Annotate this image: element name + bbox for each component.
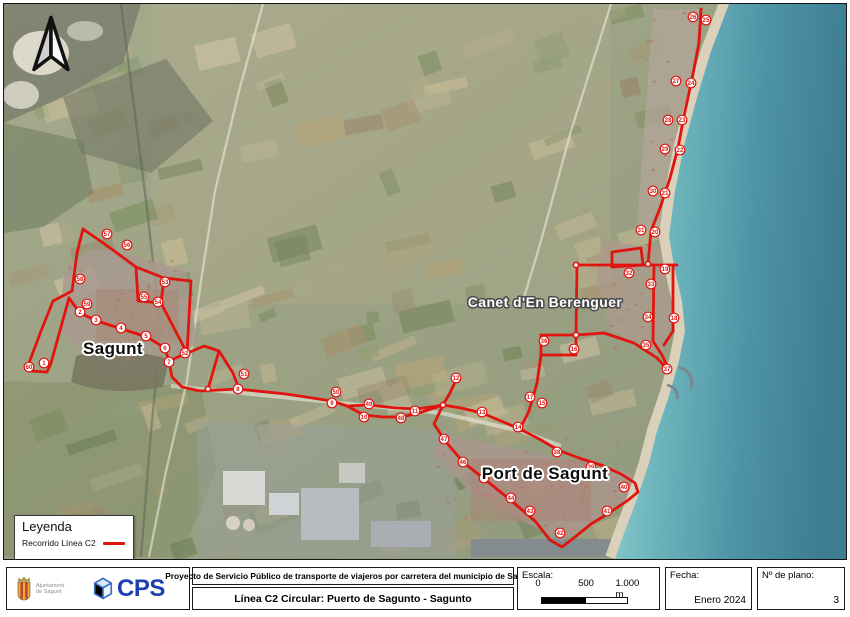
- svg-text:59: 59: [84, 301, 91, 308]
- bus-stop-marker: 31: [636, 225, 646, 235]
- svg-text:49: 49: [366, 401, 373, 408]
- bus-stop-marker: 3: [91, 315, 101, 325]
- svg-text:24: 24: [688, 80, 695, 87]
- svg-text:31: 31: [638, 227, 645, 234]
- bus-stop-marker: 2: [75, 307, 85, 317]
- legend-item: Recorrido Línea C2: [22, 538, 126, 548]
- date-value: Enero 2024: [694, 595, 746, 606]
- bus-stop-marker: 42: [555, 528, 565, 538]
- bus-stop-marker: 54: [153, 297, 163, 307]
- bus-stop-marker: 11: [410, 406, 420, 416]
- bus-stop-marker: 38: [552, 447, 562, 457]
- bus-stop-marker: 33: [646, 279, 656, 289]
- bus-stop-marker: 48: [396, 413, 406, 423]
- bus-stop-marker: 30: [648, 186, 658, 196]
- svg-text:53: 53: [162, 279, 169, 286]
- logos-cell: Ajuntament de Sagunt CPS: [6, 567, 190, 610]
- svg-text:13: 13: [479, 409, 486, 416]
- svg-text:48: 48: [398, 415, 405, 422]
- bus-stop-marker: 35: [641, 340, 651, 350]
- svg-text:17: 17: [527, 394, 534, 401]
- svg-text:20: 20: [652, 229, 659, 236]
- svg-text:16: 16: [571, 346, 578, 353]
- bus-stop-marker: 7: [164, 357, 174, 367]
- bus-stop-marker: 46: [458, 457, 468, 467]
- plan-number-label: Nº de plano:: [762, 570, 814, 581]
- bus-stop-marker: 4: [116, 323, 126, 333]
- svg-text:11: 11: [412, 408, 419, 415]
- cps-logo: CPS: [91, 575, 165, 603]
- project-title-cell: Proyecto de Servicio Público de transpor…: [192, 567, 514, 585]
- svg-text:42: 42: [557, 530, 564, 537]
- svg-text:27: 27: [673, 78, 680, 85]
- bus-stop-marker: 27: [671, 76, 681, 86]
- bus-stop-marker: 1: [39, 358, 49, 368]
- place-label: Canet d'En Berenguer: [468, 294, 623, 310]
- svg-text:15: 15: [539, 400, 546, 407]
- ajuntament-text: Ajuntament de Sagunt: [36, 583, 64, 595]
- bus-stop-marker: 40: [619, 482, 629, 492]
- svg-text:19: 19: [662, 266, 669, 273]
- project-title: Proyecto de Servicio Público de transpor…: [165, 571, 541, 581]
- bus-stop-marker: 17: [525, 392, 535, 402]
- svg-text:26: 26: [690, 14, 697, 21]
- svg-text:1: 1: [42, 360, 46, 367]
- svg-text:25: 25: [703, 17, 710, 24]
- map-canvas: 1234567891011121314151617181920212223242…: [3, 3, 847, 560]
- bus-stop-marker: 51: [239, 369, 249, 379]
- bus-stop-marker: 57: [102, 229, 112, 239]
- svg-text:32: 32: [626, 270, 633, 277]
- legend-box: Leyenda Recorrido Línea C2: [14, 515, 134, 560]
- bus-stop-marker: 34: [643, 312, 653, 322]
- bus-stop-marker: 28: [663, 115, 673, 125]
- svg-text:30: 30: [650, 188, 657, 195]
- bus-stop-marker: 16: [569, 344, 579, 354]
- route-line-swatch: [103, 542, 125, 545]
- svg-text:3: 3: [94, 317, 98, 324]
- legend-title: Leyenda: [22, 519, 126, 534]
- legend-item-label: Recorrido Línea C2: [22, 538, 96, 548]
- bus-stop-marker: 26: [688, 12, 698, 22]
- svg-text:14: 14: [515, 424, 522, 431]
- scale-ticks: 0 500 1.000 m: [518, 578, 659, 589]
- svg-text:58: 58: [77, 276, 84, 283]
- bus-stop-marker: 15: [537, 398, 547, 408]
- svg-text:9: 9: [330, 400, 334, 407]
- scale-cell: Escala: 0 500 1.000 m: [517, 567, 660, 610]
- svg-text:57: 57: [104, 231, 111, 238]
- svg-text:41: 41: [604, 508, 611, 515]
- sagunt-shield-icon: [16, 577, 32, 601]
- svg-text:33: 33: [648, 281, 655, 288]
- svg-text:36: 36: [541, 338, 548, 345]
- bus-stop-marker: 21: [660, 188, 670, 198]
- bus-stop-marker: 14: [513, 422, 523, 432]
- plan-number-cell: Nº de plano: 3: [757, 567, 845, 610]
- svg-text:51: 51: [241, 371, 248, 378]
- bus-stop-marker: 12: [451, 373, 461, 383]
- bus-stop-marker: 60: [24, 362, 34, 372]
- plan-number-value: 3: [833, 595, 839, 606]
- bus-stop-marker: 13: [477, 407, 487, 417]
- cps-wordmark: CPS: [117, 575, 165, 603]
- svg-text:56: 56: [124, 242, 131, 249]
- svg-text:4: 4: [119, 325, 123, 332]
- bus-stop-marker: 29: [660, 144, 670, 154]
- plan-title-cell: Línea C2 Circular: Puerto de Sagunto - S…: [192, 587, 514, 610]
- svg-text:50: 50: [333, 389, 340, 396]
- svg-text:7: 7: [167, 359, 171, 366]
- svg-text:55: 55: [141, 294, 148, 301]
- bus-stop-marker: 43: [525, 506, 535, 516]
- plan-page: 1234567891011121314151617181920212223242…: [0, 0, 850, 617]
- svg-text:34: 34: [645, 314, 652, 321]
- bus-stop-marker: 18: [669, 313, 679, 323]
- bus-stop-marker: 20: [650, 227, 660, 237]
- date-cell: Fecha: Enero 2024: [665, 567, 752, 610]
- bus-stop-marker: 41: [602, 506, 612, 516]
- bus-stop-marker: 56: [122, 240, 132, 250]
- svg-text:46: 46: [460, 459, 467, 466]
- svg-text:10: 10: [361, 414, 368, 421]
- scale-bar: [541, 597, 628, 604]
- svg-text:44: 44: [508, 495, 515, 502]
- bus-stop-marker: 22: [675, 145, 685, 155]
- svg-text:38: 38: [554, 449, 561, 456]
- svg-text:40: 40: [621, 484, 628, 491]
- svg-text:43: 43: [527, 508, 534, 515]
- satellite-map: 1234567891011121314151617181920212223242…: [4, 4, 846, 559]
- bus-stop-marker: 6: [160, 343, 170, 353]
- bus-stop-marker: 44: [506, 493, 516, 503]
- place-label: Port de Sagunt: [482, 464, 609, 483]
- svg-text:8: 8: [236, 386, 240, 393]
- svg-text:37: 37: [664, 366, 671, 373]
- svg-text:35: 35: [643, 342, 650, 349]
- svg-text:52: 52: [182, 350, 189, 357]
- bus-stop-marker: 49: [364, 399, 374, 409]
- bus-stop-marker: 36: [539, 336, 549, 346]
- bus-stop-marker: 59: [82, 299, 92, 309]
- bus-stop-marker: 53: [160, 277, 170, 287]
- plan-title: Línea C2 Circular: Puerto de Sagunto - S…: [234, 593, 471, 605]
- svg-text:28: 28: [665, 117, 672, 124]
- svg-text:60: 60: [26, 364, 33, 371]
- bus-stop-marker: 24: [686, 78, 696, 88]
- bus-stop-marker: 25: [701, 15, 711, 25]
- bus-stop-marker: 9: [327, 398, 337, 408]
- bus-stop-marker: 8: [233, 384, 243, 394]
- ajuntament-logo: Ajuntament de Sagunt: [16, 577, 64, 601]
- bus-stop-marker: 19: [660, 264, 670, 274]
- svg-text:21: 21: [662, 190, 669, 197]
- bus-stop-marker: 52: [180, 348, 190, 358]
- svg-text:29: 29: [662, 146, 669, 153]
- bus-stop-marker: 55: [139, 292, 149, 302]
- svg-text:2: 2: [78, 309, 82, 316]
- svg-text:47: 47: [441, 436, 448, 443]
- north-arrow-icon: [26, 8, 76, 84]
- bus-stop-marker: 58: [75, 274, 85, 284]
- svg-text:22: 22: [677, 147, 684, 154]
- bus-stop-marker: 50: [331, 387, 341, 397]
- svg-text:5: 5: [144, 333, 148, 340]
- bus-stop-marker: 32: [624, 268, 634, 278]
- svg-text:12: 12: [453, 375, 460, 382]
- date-label: Fecha:: [670, 570, 699, 581]
- bus-stop-marker: 23: [677, 115, 687, 125]
- cps-cube-icon: [91, 576, 115, 602]
- svg-text:18: 18: [671, 315, 678, 322]
- bus-stop-marker: 37: [662, 364, 672, 374]
- svg-text:54: 54: [155, 299, 162, 306]
- svg-text:6: 6: [163, 345, 167, 352]
- bus-stop-marker: 10: [359, 412, 369, 422]
- svg-text:23: 23: [679, 117, 686, 124]
- place-label: Sagunt: [83, 339, 143, 358]
- bus-stop-marker: 47: [439, 434, 449, 444]
